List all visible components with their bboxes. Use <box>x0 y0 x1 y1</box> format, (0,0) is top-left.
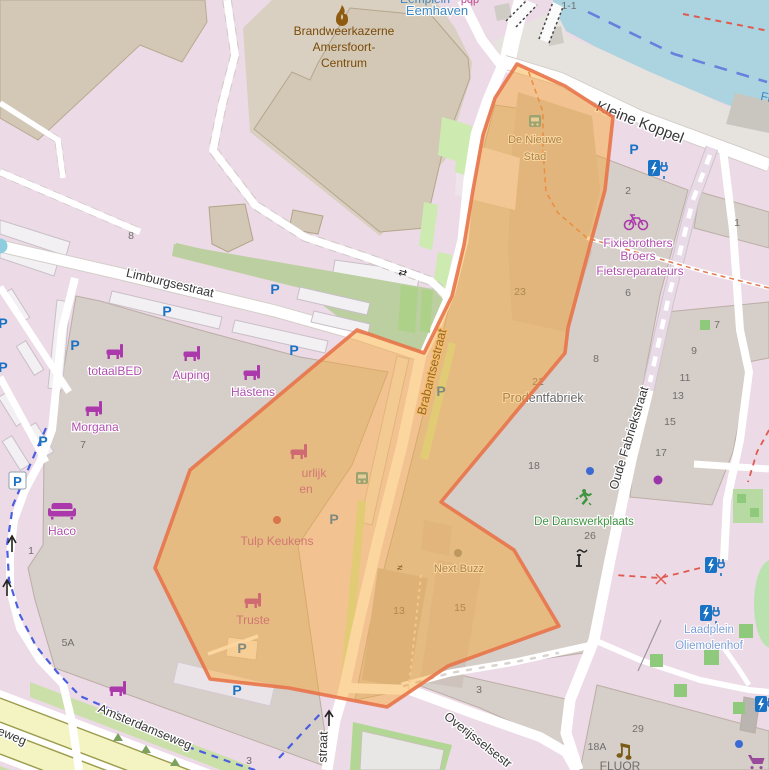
svg-text:18: 18 <box>528 460 540 472</box>
svg-text:Oliemolenhof: Oliemolenhof <box>675 640 744 652</box>
svg-text:P: P <box>232 682 241 698</box>
svg-text:8: 8 <box>593 353 599 365</box>
svg-text:3: 3 <box>476 684 482 696</box>
svg-text:P: P <box>289 342 298 358</box>
svg-text:Auping: Auping <box>172 368 209 382</box>
svg-text:26: 26 <box>584 530 596 542</box>
svg-text:5A: 5A <box>62 637 75 649</box>
svg-text:29: 29 <box>632 723 644 735</box>
svg-text:15: 15 <box>664 416 676 428</box>
svg-text:Hästens: Hästens <box>231 385 275 399</box>
svg-text:Haco: Haco <box>48 524 76 538</box>
svg-text:Fietsreparateurs: Fietsreparateurs <box>596 264 683 278</box>
svg-text:FLUOR: FLUOR <box>600 759 641 770</box>
svg-text:Broers: Broers <box>620 249 655 263</box>
svg-text:7: 7 <box>80 439 86 451</box>
svg-text:13: 13 <box>672 390 684 402</box>
svg-text:11: 11 <box>680 372 691 384</box>
svg-text:totaalBED: totaalBED <box>88 364 142 378</box>
svg-text:P: P <box>270 281 279 297</box>
svg-text:9: 9 <box>691 345 697 357</box>
svg-text:1-1: 1-1 <box>561 0 576 12</box>
svg-text:P: P <box>0 315 8 331</box>
svg-text:7: 7 <box>714 319 720 331</box>
svg-text:P: P <box>38 433 47 449</box>
svg-text:3: 3 <box>246 755 252 767</box>
svg-text:Brandweerkazerne: Brandweerkazerne <box>294 24 395 38</box>
svg-text:P: P <box>629 141 638 157</box>
svg-text:6: 6 <box>625 287 631 299</box>
svg-text:P: P <box>13 474 22 489</box>
svg-text:1: 1 <box>28 545 34 557</box>
svg-text:Fixiebrothers: Fixiebrothers <box>603 236 672 250</box>
svg-text:P: P <box>162 303 171 319</box>
svg-text:Morgana: Morgana <box>71 420 119 434</box>
svg-text:8: 8 <box>128 230 134 242</box>
svg-text:P: P <box>70 337 79 353</box>
svg-text:18A: 18A <box>588 741 607 753</box>
svg-text:P: P <box>0 359 8 375</box>
svg-text:17: 17 <box>655 447 667 459</box>
svg-text:straat: straat <box>315 731 330 763</box>
svg-text:Laadplein: Laadplein <box>684 624 734 636</box>
svg-text:Amersfoort-: Amersfoort- <box>313 40 376 54</box>
svg-text:Eemhaven: Eemhaven <box>406 3 468 18</box>
svg-text:Centrum: Centrum <box>321 56 367 70</box>
svg-text:De Danswerkplaats: De Danswerkplaats <box>534 516 634 528</box>
svg-text:2: 2 <box>625 185 631 197</box>
svg-text:1: 1 <box>734 217 740 229</box>
